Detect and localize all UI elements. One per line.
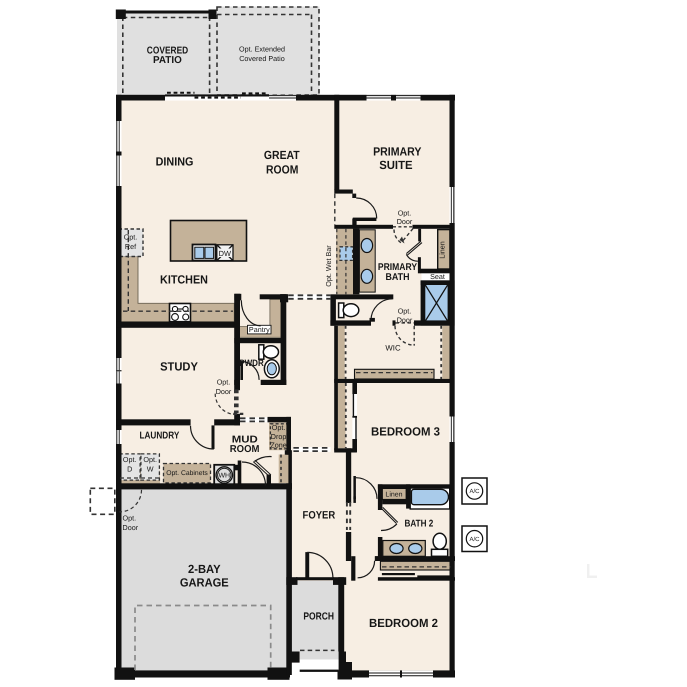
svg-text:Opt.: Opt. [398, 209, 412, 218]
svg-text:Covered Patio: Covered Patio [239, 54, 285, 63]
svg-text:BATH 2: BATH 2 [405, 518, 434, 529]
svg-text:Pantry: Pantry [249, 325, 270, 334]
svg-text:Opt. Extended: Opt. Extended [239, 45, 285, 54]
svg-text:D: D [127, 465, 132, 474]
svg-text:DINING: DINING [156, 155, 194, 169]
svg-text:Opt.: Opt. [123, 514, 137, 523]
svg-text:Zone: Zone [270, 441, 286, 450]
svg-text:Opt. Wet Bar: Opt. Wet Bar [324, 245, 333, 287]
svg-text:PRIMARY: PRIMARY [373, 145, 421, 159]
svg-text:STUDY: STUDY [160, 360, 198, 374]
svg-text:Opt.: Opt. [217, 378, 231, 387]
svg-text:ROOM: ROOM [266, 163, 298, 177]
svg-text:Ref: Ref [125, 242, 136, 251]
svg-text:Linen: Linen [438, 241, 447, 259]
svg-text:PWDR: PWDR [239, 358, 264, 368]
svg-text:Opt.: Opt. [143, 455, 157, 464]
svg-text:BATH: BATH [386, 272, 410, 283]
svg-text:Opt. Cabinets: Opt. Cabinets [166, 470, 208, 477]
svg-text:A/C: A/C [469, 536, 480, 543]
svg-text:FOYER: FOYER [303, 509, 336, 521]
svg-text:GARAGE: GARAGE [180, 575, 229, 589]
svg-text:Seat: Seat [430, 272, 445, 281]
svg-text:Opt.: Opt. [398, 307, 412, 316]
svg-text:DW: DW [219, 249, 231, 258]
svg-text:2-BAY: 2-BAY [188, 562, 221, 576]
svg-text:SUITE: SUITE [379, 158, 412, 172]
svg-text:Door: Door [397, 217, 413, 226]
svg-text:Opt.: Opt. [124, 233, 138, 242]
svg-text:A/C: A/C [469, 488, 480, 495]
svg-text:Door: Door [123, 523, 139, 532]
svg-text:BEDROOM 2: BEDROOM 2 [369, 616, 438, 630]
svg-text:WIC: WIC [385, 344, 401, 353]
svg-text:GREAT: GREAT [264, 148, 300, 162]
svg-text:WH: WH [218, 473, 230, 480]
svg-text:Door: Door [216, 387, 232, 396]
svg-text:PATIO: PATIO [153, 55, 182, 66]
svg-text:PORCH: PORCH [303, 612, 334, 623]
svg-text:Opt.: Opt. [272, 423, 286, 432]
svg-text:Drop: Drop [271, 432, 287, 441]
svg-text:ROOM: ROOM [230, 444, 260, 455]
svg-text:BEDROOM 3: BEDROOM 3 [371, 425, 440, 439]
svg-text:KITCHEN: KITCHEN [160, 272, 208, 286]
svg-text:LAUNDRY: LAUNDRY [140, 431, 180, 442]
svg-text:W: W [147, 465, 154, 474]
svg-text:Linen: Linen [385, 491, 402, 499]
svg-text:Opt.: Opt. [123, 455, 137, 464]
svg-text:Door: Door [397, 315, 413, 324]
